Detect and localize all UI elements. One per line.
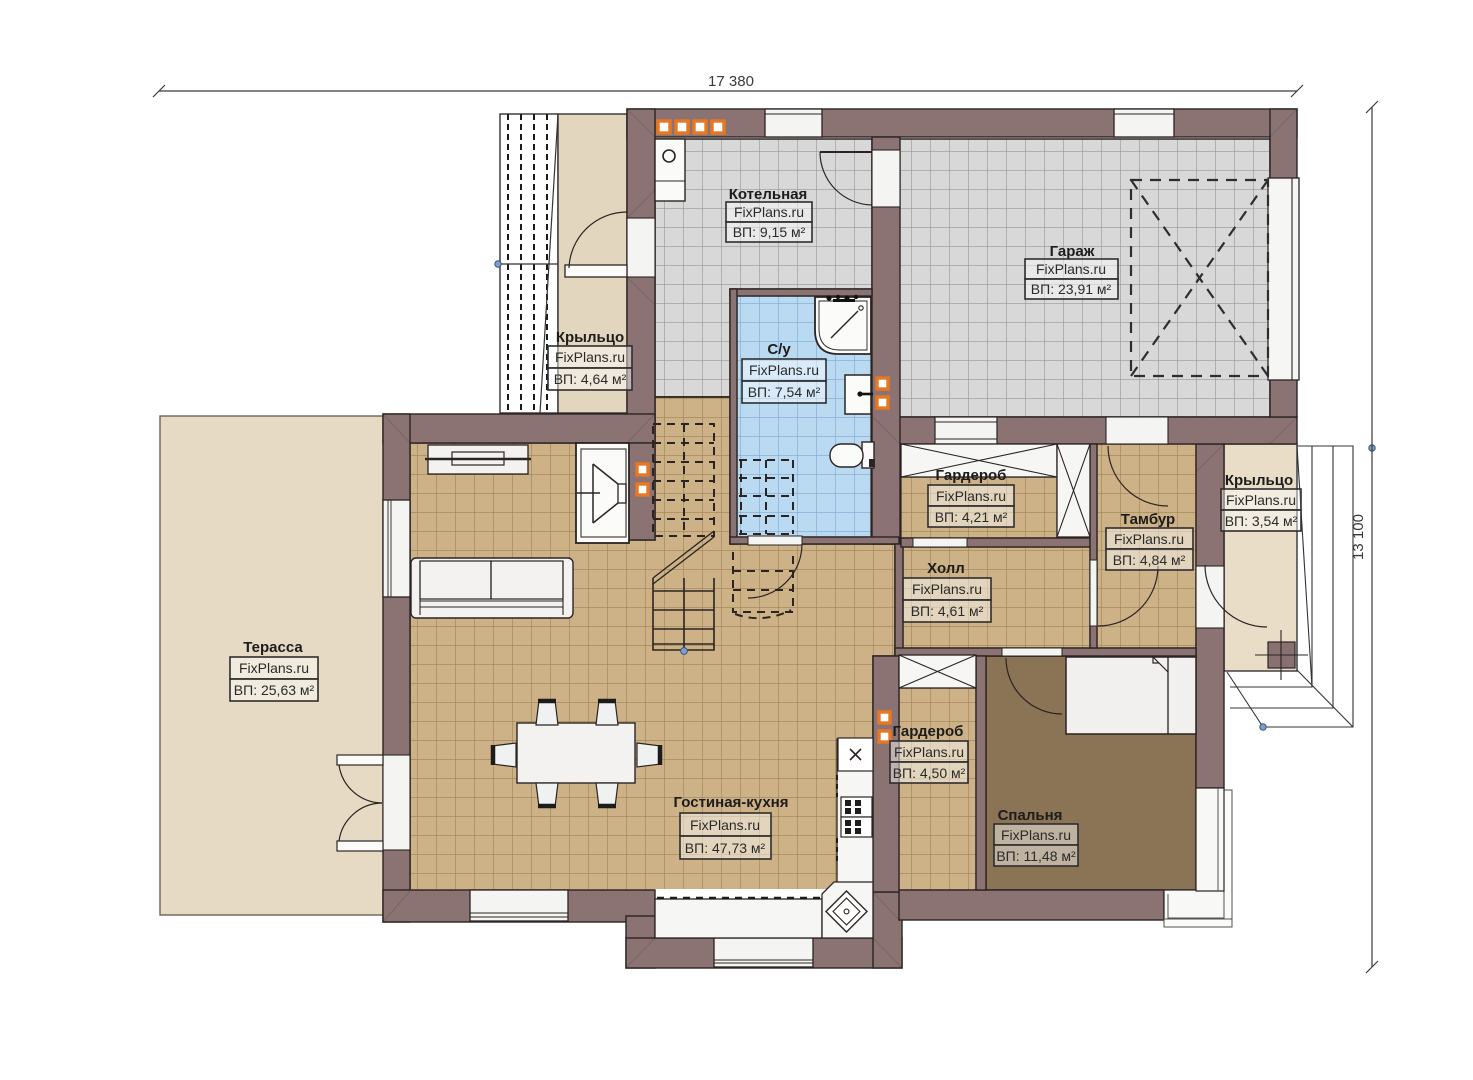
svg-text:Терасса: Терасса [243,639,303,656]
svg-text:Котельная: Котельная [729,186,808,203]
svg-text:ВП: 3,54 м²: ВП: 3,54 м² [1225,513,1298,529]
svg-text:ВП: 4,64 м²: ВП: 4,64 м² [554,371,627,387]
svg-text:Спальня: Спальня [998,807,1063,824]
svg-text:Гараж: Гараж [1050,243,1095,260]
svg-text:17 380: 17 380 [708,73,754,90]
svg-text:Крыльцо: Крыльцо [556,329,624,346]
svg-text:Тамбур: Тамбур [1121,511,1175,528]
svg-text:ВП: 11,48 м²: ВП: 11,48 м² [996,848,1076,864]
svg-text:FixPlans.ru: FixPlans.ru [1114,531,1184,547]
svg-text:ВП: 7,54 м²: ВП: 7,54 м² [748,384,821,400]
svg-text:ВП: 4,50 м²: ВП: 4,50 м² [893,765,966,781]
svg-text:ВП: 23,91 м²: ВП: 23,91 м² [1031,281,1112,297]
svg-text:ВП: 9,15 м²: ВП: 9,15 м² [733,224,806,240]
svg-text:Крыльцо: Крыльцо [1225,472,1293,489]
svg-text:ВП: 47,73 м²: ВП: 47,73 м² [685,840,766,856]
svg-text:Гостиная-кухня: Гостиная-кухня [674,794,789,811]
svg-text:FixPlans.ru: FixPlans.ru [894,744,964,760]
svg-text:ВП: 4,84 м²: ВП: 4,84 м² [1113,552,1186,568]
svg-text:ВП: 4,21 м²: ВП: 4,21 м² [935,509,1008,525]
svg-text:Гардероб: Гардероб [893,723,964,740]
svg-text:FixPlans.ru: FixPlans.ru [912,581,982,597]
svg-text:ВП: 4,61 м²: ВП: 4,61 м² [911,603,984,619]
svg-text:FixPlans.ru: FixPlans.ru [1036,261,1106,277]
svg-text:FixPlans.ru: FixPlans.ru [749,362,819,378]
svg-text:FixPlans.ru: FixPlans.ru [734,204,804,220]
svg-text:Холл: Холл [927,560,965,577]
svg-text:FixPlans.ru: FixPlans.ru [936,488,1006,504]
svg-text:Гардероб: Гардероб [936,467,1007,484]
svg-text:FixPlans.ru: FixPlans.ru [1001,827,1071,843]
svg-text:13 100: 13 100 [1350,514,1367,560]
svg-text:FixPlans.ru: FixPlans.ru [555,349,625,365]
svg-text:FixPlans.ru: FixPlans.ru [690,817,760,833]
svg-text:FixPlans.ru: FixPlans.ru [239,660,309,676]
svg-text:FixPlans.ru: FixPlans.ru [1226,492,1296,508]
svg-text:ВП: 25,63 м²: ВП: 25,63 м² [234,682,315,698]
svg-text:С/у: С/у [767,341,791,358]
